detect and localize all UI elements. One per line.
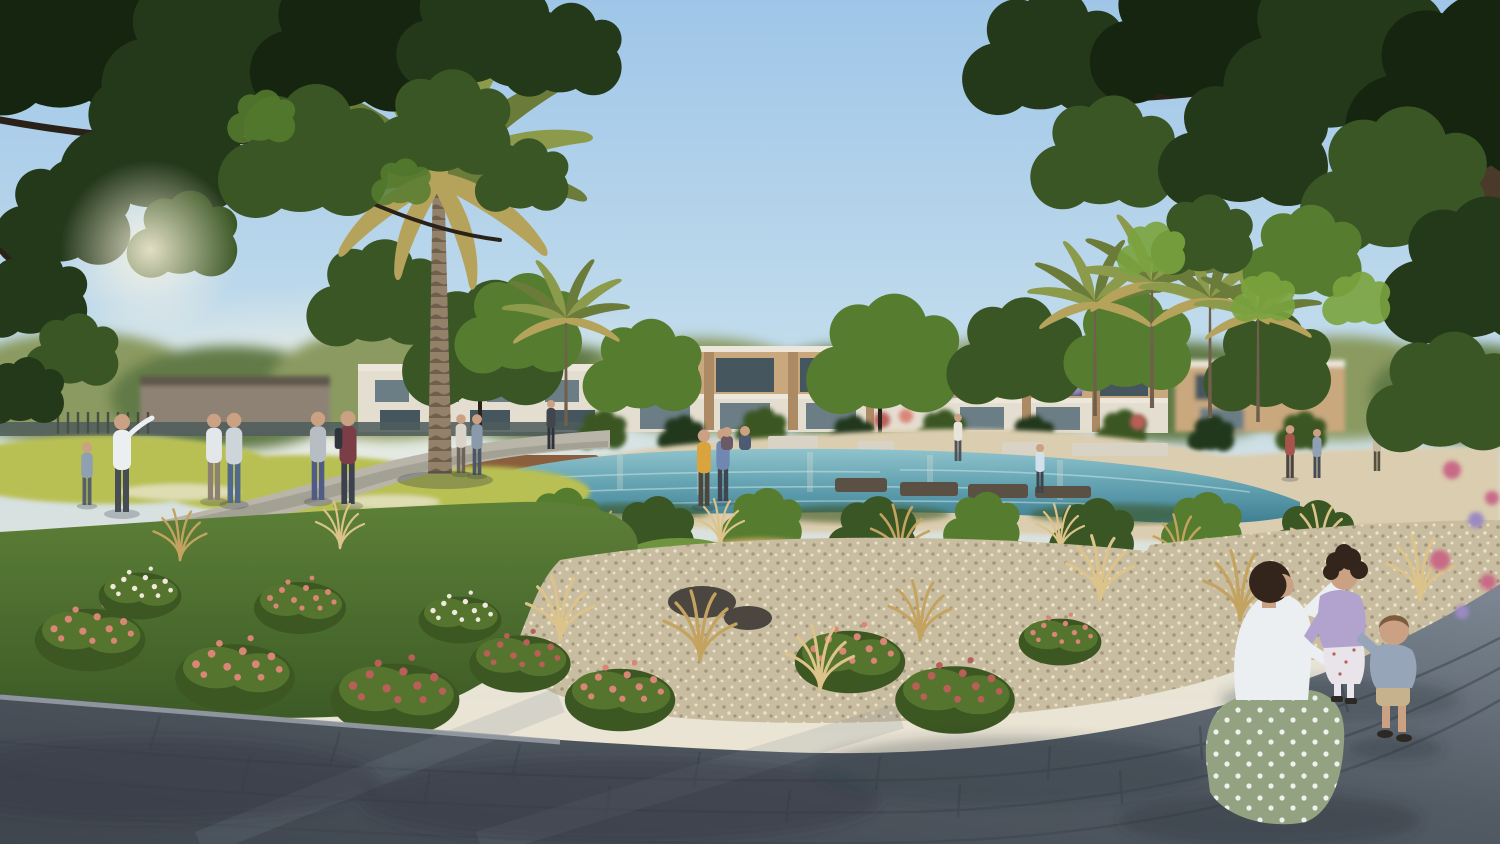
rendering-frame <box>0 0 1500 844</box>
rock <box>668 586 736 618</box>
park-rendering <box>0 0 1500 844</box>
polka-dot-skirt <box>1206 690 1344 824</box>
